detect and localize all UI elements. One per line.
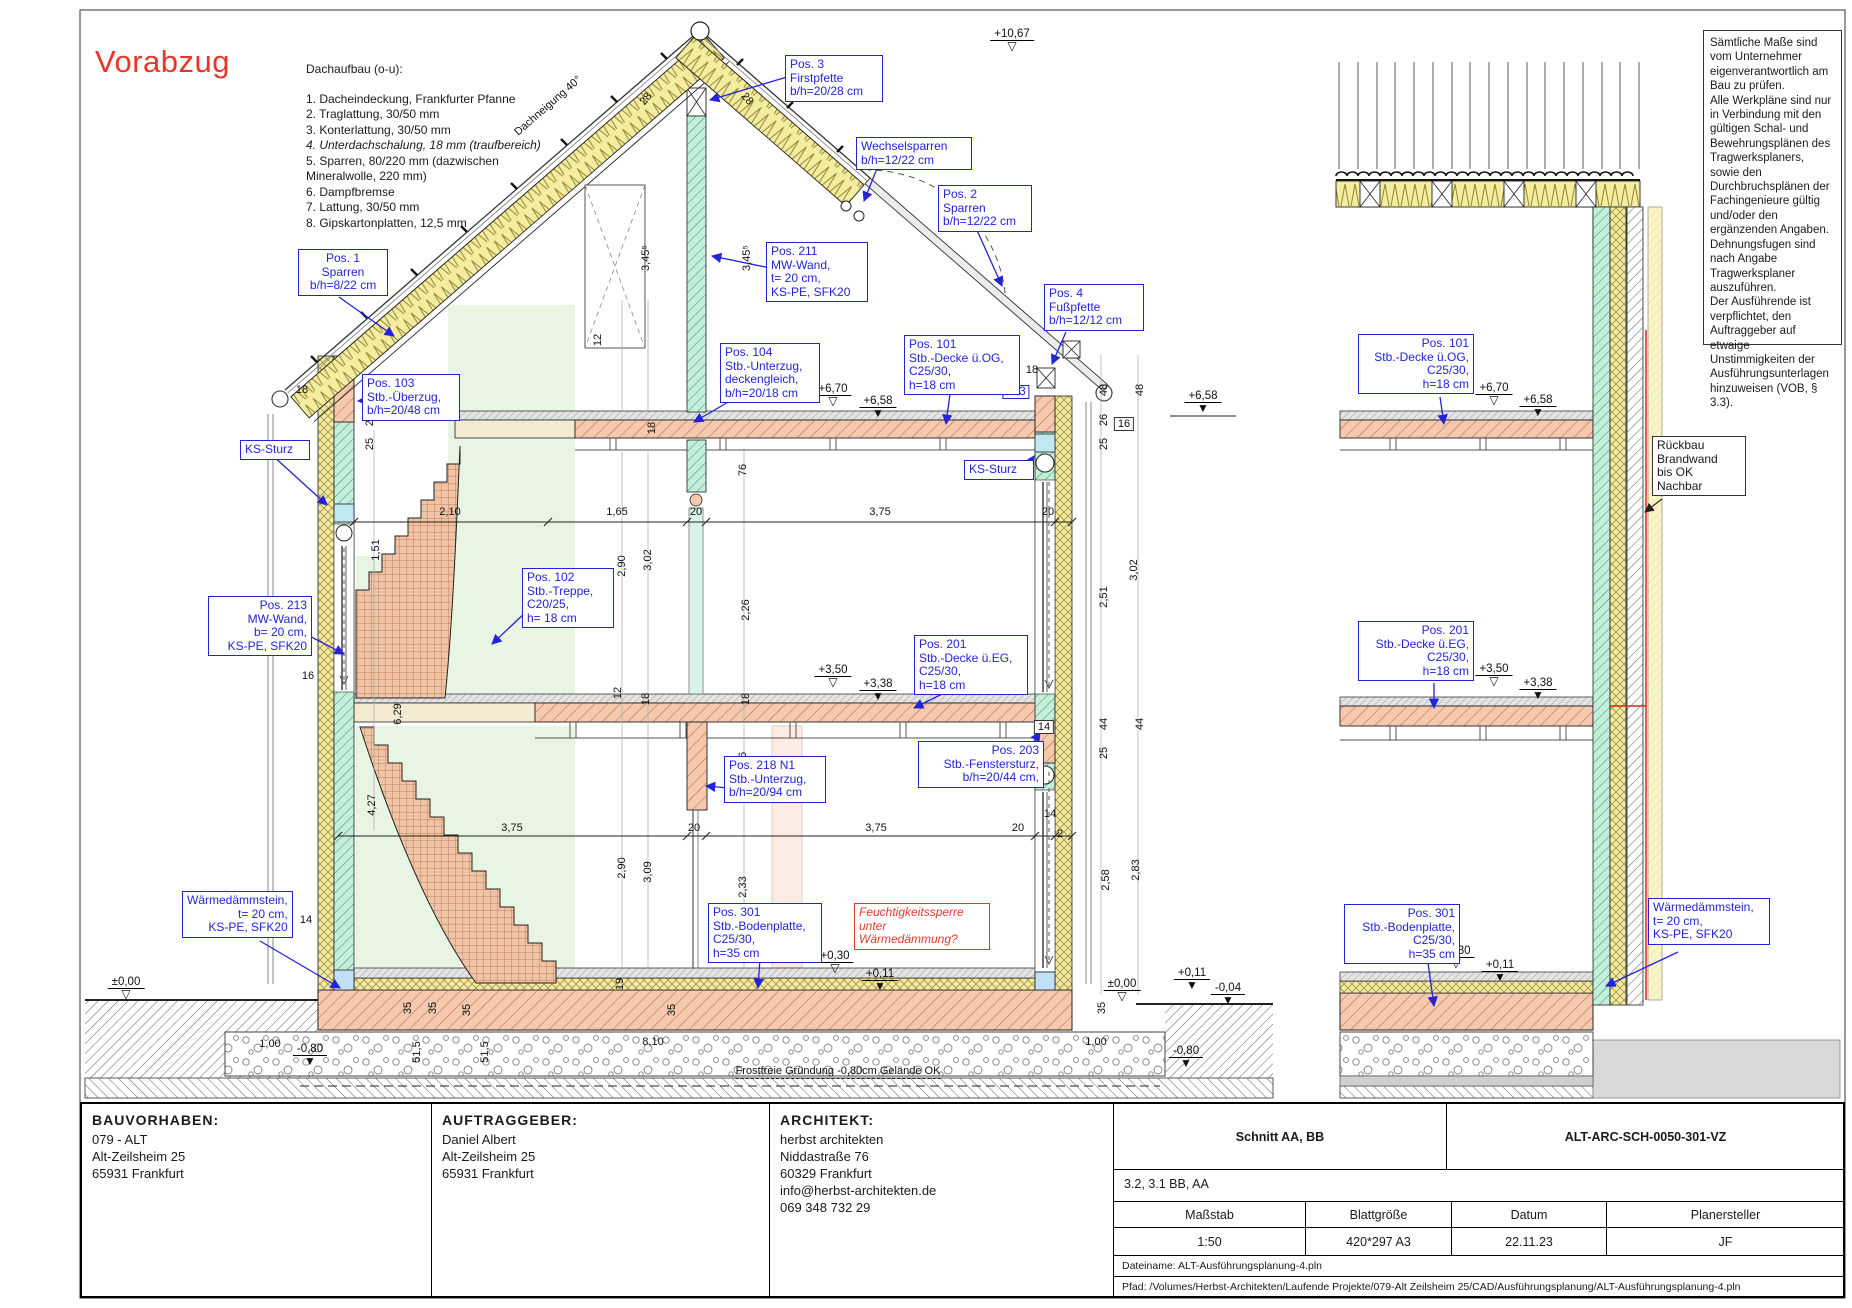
dimension-label: 35	[427, 1002, 439, 1014]
label-pos2-sparren: Pos. 2Sparrenb/h=12/22 cm	[938, 185, 1032, 232]
dimension-label: 12	[592, 334, 604, 346]
label-pos101-decke-og-right: Pos. 101Stb.-Decke ü.OG,C25/30,h=18 cm	[1358, 334, 1474, 394]
level-marker: +0,30▽	[816, 950, 853, 973]
dimension-label: 25	[364, 438, 376, 450]
dimension-label: 3,75	[865, 822, 886, 834]
level-marker: ±0,00▽	[1104, 978, 1141, 1001]
label-pos213-mw-wand: Pos. 213MW-Wand,b= 20 cm,KS-PE, SFK20	[208, 596, 312, 656]
auftraggeber-line: Alt-Zeilsheim 25	[442, 1148, 759, 1165]
dimension-label: 20	[690, 506, 702, 518]
dimension-label: 3,02	[642, 549, 654, 570]
dimension-label: 20	[688, 822, 700, 834]
label-pos211-mw-wand: Pos. 211MW-Wand,t= 20 cm,KS-PE, SFK20	[766, 242, 868, 302]
dimension-label: 51,5	[411, 1041, 423, 1062]
dimension-label: 35	[461, 1004, 473, 1016]
dimension-label: 2	[1057, 828, 1063, 840]
architekt-label: ARCHITEKT:	[780, 1112, 1103, 1129]
level-marker: +6,70▽	[814, 383, 851, 406]
auftraggeber-label: AUFTRAGGEBER:	[442, 1112, 759, 1129]
drawing-sheet: Vorabzug Dachaufbau (o-u): 1. Dacheindec…	[0, 0, 1852, 1308]
label-pos4-fusspfette: Pos. 4Fußpfetteb/h=12/12 cm	[1044, 284, 1144, 331]
dimension-label: 12	[612, 687, 624, 699]
level-marker: +3,50▽	[1475, 663, 1512, 686]
dimension-label: 2,90	[616, 555, 628, 576]
label-pos301-bodenplatte-right: Pos. 301Stb.-Bodenplatte,C25/30,h=35 cm	[1344, 904, 1460, 964]
dimension-label: 19	[614, 978, 626, 990]
dimension-label: 2,83	[1130, 859, 1142, 880]
dimension-label: 20	[1042, 506, 1054, 518]
dimension-label: 3,75	[501, 822, 522, 834]
label-rueckbau-brandwand: RückbauBrandwandbis OKNachbar	[1652, 436, 1746, 496]
massstab-header: Maßstab	[1114, 1202, 1306, 1228]
label-waermedaemmstein-left: Wärmedämmstein,t= 20 cm,KS-PE, SFK20	[182, 891, 293, 938]
label-pos201-decke-eg: Pos. 201Stb.-Decke ü.EG,C25/30,h=18 cm	[914, 635, 1028, 695]
titleblock-bauvorhaben: BAUVORHABEN: 079 - ALT Alt-Zeilsheim 25 …	[82, 1104, 432, 1296]
dimension-label: 14	[1044, 808, 1056, 820]
titleblock-architekt: ARCHITEKT: herbst architekten Niddastraß…	[770, 1104, 1114, 1296]
label-pos102-treppe: Pos. 102Stb.-Treppe,C20/25,h= 18 cm	[522, 568, 614, 628]
dimension-label: 20	[1012, 822, 1024, 834]
dimension-label: 48	[1098, 384, 1110, 396]
titleblock-right: Schnitt AA, BB ALT-ARC-SCH-0050-301-VZ 3…	[1114, 1104, 1844, 1296]
label-pos101-decke-og: Pos. 101Stb.-Decke ü.OG,C25/30,h=18 cm	[904, 335, 1020, 395]
architekt-line: 069 348 732 29	[780, 1199, 1103, 1216]
massstab-value: 1:50	[1114, 1228, 1306, 1256]
label-pos104-unterzug: Pos. 104Stb.-Unterzug,deckengleich,b/h=2…	[720, 343, 820, 403]
dimension-label: 2,51	[1098, 586, 1110, 607]
dimension-label: 2,33	[737, 876, 749, 897]
label-pos301-bodenplatte: Pos. 301Stb.-Bodenplatte,C25/30,h=35 cm	[708, 903, 822, 963]
pfad: Pfad: /Volumes/Herbst-Architekten/Laufen…	[1114, 1277, 1844, 1298]
dimension-label: 18	[646, 422, 658, 434]
level-marker: +0,11▼	[862, 968, 898, 991]
dimension-label: 26	[1098, 414, 1110, 426]
bauvorhaben-line: 65931 Frankfurt	[92, 1165, 421, 1182]
architekt-line: Niddastraße 76	[780, 1148, 1103, 1165]
dimension-label: 1,51	[370, 539, 382, 560]
dimension-label: 18	[740, 693, 752, 705]
dimension-label: 76	[737, 464, 749, 476]
label-pos1-sparren: Pos. 1Sparrenb/h=8/22 cm	[298, 249, 388, 296]
dimension-label: 16	[1114, 417, 1134, 431]
dimension-label: 35	[1096, 1002, 1108, 1014]
sheet-title: Schnitt AA, BB	[1114, 1104, 1447, 1170]
blattgroesse-header: Blattgröße	[1306, 1202, 1452, 1228]
auftraggeber-line: 65931 Frankfurt	[442, 1165, 759, 1182]
level-marker: +10,67▽	[990, 28, 1034, 51]
dimension-label: 3,45⁵	[741, 245, 753, 271]
dimension-label: 25	[1098, 438, 1110, 450]
dimension-label: 1,00	[1085, 1036, 1106, 1048]
level-marker: +3,50▽	[814, 664, 851, 687]
dimension-label: 3,45⁵	[640, 245, 652, 271]
label-feuchtigkeitssperre: FeuchtigkeitssperreunterWärmedämmung?	[854, 903, 990, 950]
dimension-label: 14	[1034, 720, 1054, 734]
dimension-label: 18	[1026, 364, 1038, 376]
dimension-label: 1,65	[606, 506, 627, 518]
level-marker: +3,38▼	[1519, 677, 1556, 700]
level-marker: -0,80▼	[293, 1043, 327, 1066]
title-block: BAUVORHABEN: 079 - ALT Alt-Zeilsheim 25 …	[80, 1102, 1845, 1298]
dimension-label: 51,5	[479, 1041, 491, 1062]
level-marker: ±0,00▽	[108, 976, 145, 999]
blattgroesse-value: 420*297 A3	[1306, 1228, 1452, 1256]
label-ks-sturz-left: KS-Sturz	[240, 440, 310, 460]
architekt-line: info@herbst-architekten.de	[780, 1182, 1103, 1199]
dimension-label: 8,10	[642, 1036, 663, 1048]
dimension-label: 44	[1134, 718, 1146, 730]
architekt-line: 60329 Frankfurt	[780, 1165, 1103, 1182]
dimension-label: 35	[666, 1004, 678, 1016]
dimension-label: 3,75	[869, 506, 890, 518]
label-pos201-decke-eg-right: Pos. 201Stb.-Decke ü.EG,C25/30,h=18 cm	[1358, 621, 1474, 681]
dimension-label: 1,00	[259, 1038, 280, 1050]
label-pos203-fenstersturz: Pos. 203Stb.-Fenstersturz,b/h=20/44 cm,	[918, 741, 1044, 788]
dimension-label: 3,02	[1128, 559, 1140, 580]
dimension-label: 14	[300, 914, 312, 926]
dimension-label: 18	[640, 693, 652, 705]
dimension-label: 44	[1098, 718, 1110, 730]
dimension-label: 16	[302, 670, 314, 682]
architekt-line: herbst architekten	[780, 1131, 1103, 1148]
dimension-label: 48	[1134, 384, 1146, 396]
auftraggeber-line: Daniel Albert	[442, 1131, 759, 1148]
titleblock-auftraggeber: AUFTRAGGEBER: Daniel Albert Alt-Zeilshei…	[432, 1104, 770, 1296]
dimension-label: 35	[402, 1002, 414, 1014]
drawing-note: Frostfreie Gründung -0,80cm Gelände OK	[736, 1065, 941, 1079]
label-ks-sturz-right: KS-Sturz	[964, 460, 1034, 480]
sheet-subtitle: 3.2, 3.1 BB, AA	[1114, 1170, 1844, 1198]
level-marker: +6,70▽	[1475, 382, 1512, 405]
label-pos218-unterzug: Pos. 218 N1Stb.-Unterzug,b/h=20/94 cm	[724, 756, 826, 803]
label-pos103-ueberzug: Pos. 103Stb.-Überzug,b/h=20/48 cm	[362, 374, 460, 421]
datum-header: Datum	[1452, 1202, 1607, 1228]
level-marker: +6,58▼	[859, 395, 896, 418]
level-marker: +6,58▼	[1519, 394, 1556, 417]
datum-value: 22.11.23	[1452, 1228, 1607, 1256]
level-marker: +6,58▼	[1184, 390, 1221, 413]
label-pos3-firstpfette: Pos. 3Firstpfetteb/h=20/28 cm	[785, 55, 883, 102]
sheet-code: ALT-ARC-SCH-0050-301-VZ	[1447, 1104, 1844, 1170]
level-marker: -0,80▼	[1169, 1045, 1203, 1068]
dimension-label: 3,09	[642, 861, 654, 882]
dimension-label: 2,10	[439, 506, 460, 518]
level-marker: -0,04▼	[1211, 982, 1245, 1005]
dimension-label: 4,27	[366, 794, 378, 815]
label-wechselsparren: Wechselsparrenb/h=12/22 cm	[856, 137, 972, 170]
dimension-label: 25	[1098, 747, 1110, 759]
level-marker: +0,11▼	[1482, 959, 1518, 982]
dimension-label: 18	[296, 384, 308, 396]
dateiname: Dateiname: ALT-Ausführungsplanung-4.pln	[1114, 1256, 1844, 1277]
dimension-label: 6,29	[392, 703, 404, 724]
bauvorhaben-line: Alt-Zeilsheim 25	[92, 1148, 421, 1165]
dimension-label: 2,58	[1100, 869, 1112, 890]
planersteller-value: JF	[1607, 1228, 1844, 1256]
level-marker: +3,38▼	[859, 678, 896, 701]
level-marker: +0,11▼	[1174, 967, 1210, 990]
dimension-label: 2,26	[740, 599, 752, 620]
bauvorhaben-line: 079 - ALT	[92, 1131, 421, 1148]
planersteller-header: Planersteller	[1607, 1202, 1844, 1228]
dimension-label: 2,90	[616, 857, 628, 878]
label-waermedaemmstein-right: Wärmedämmstein,t= 20 cm,KS-PE, SFK20	[1648, 898, 1770, 945]
bauvorhaben-label: BAUVORHABEN:	[92, 1112, 421, 1129]
